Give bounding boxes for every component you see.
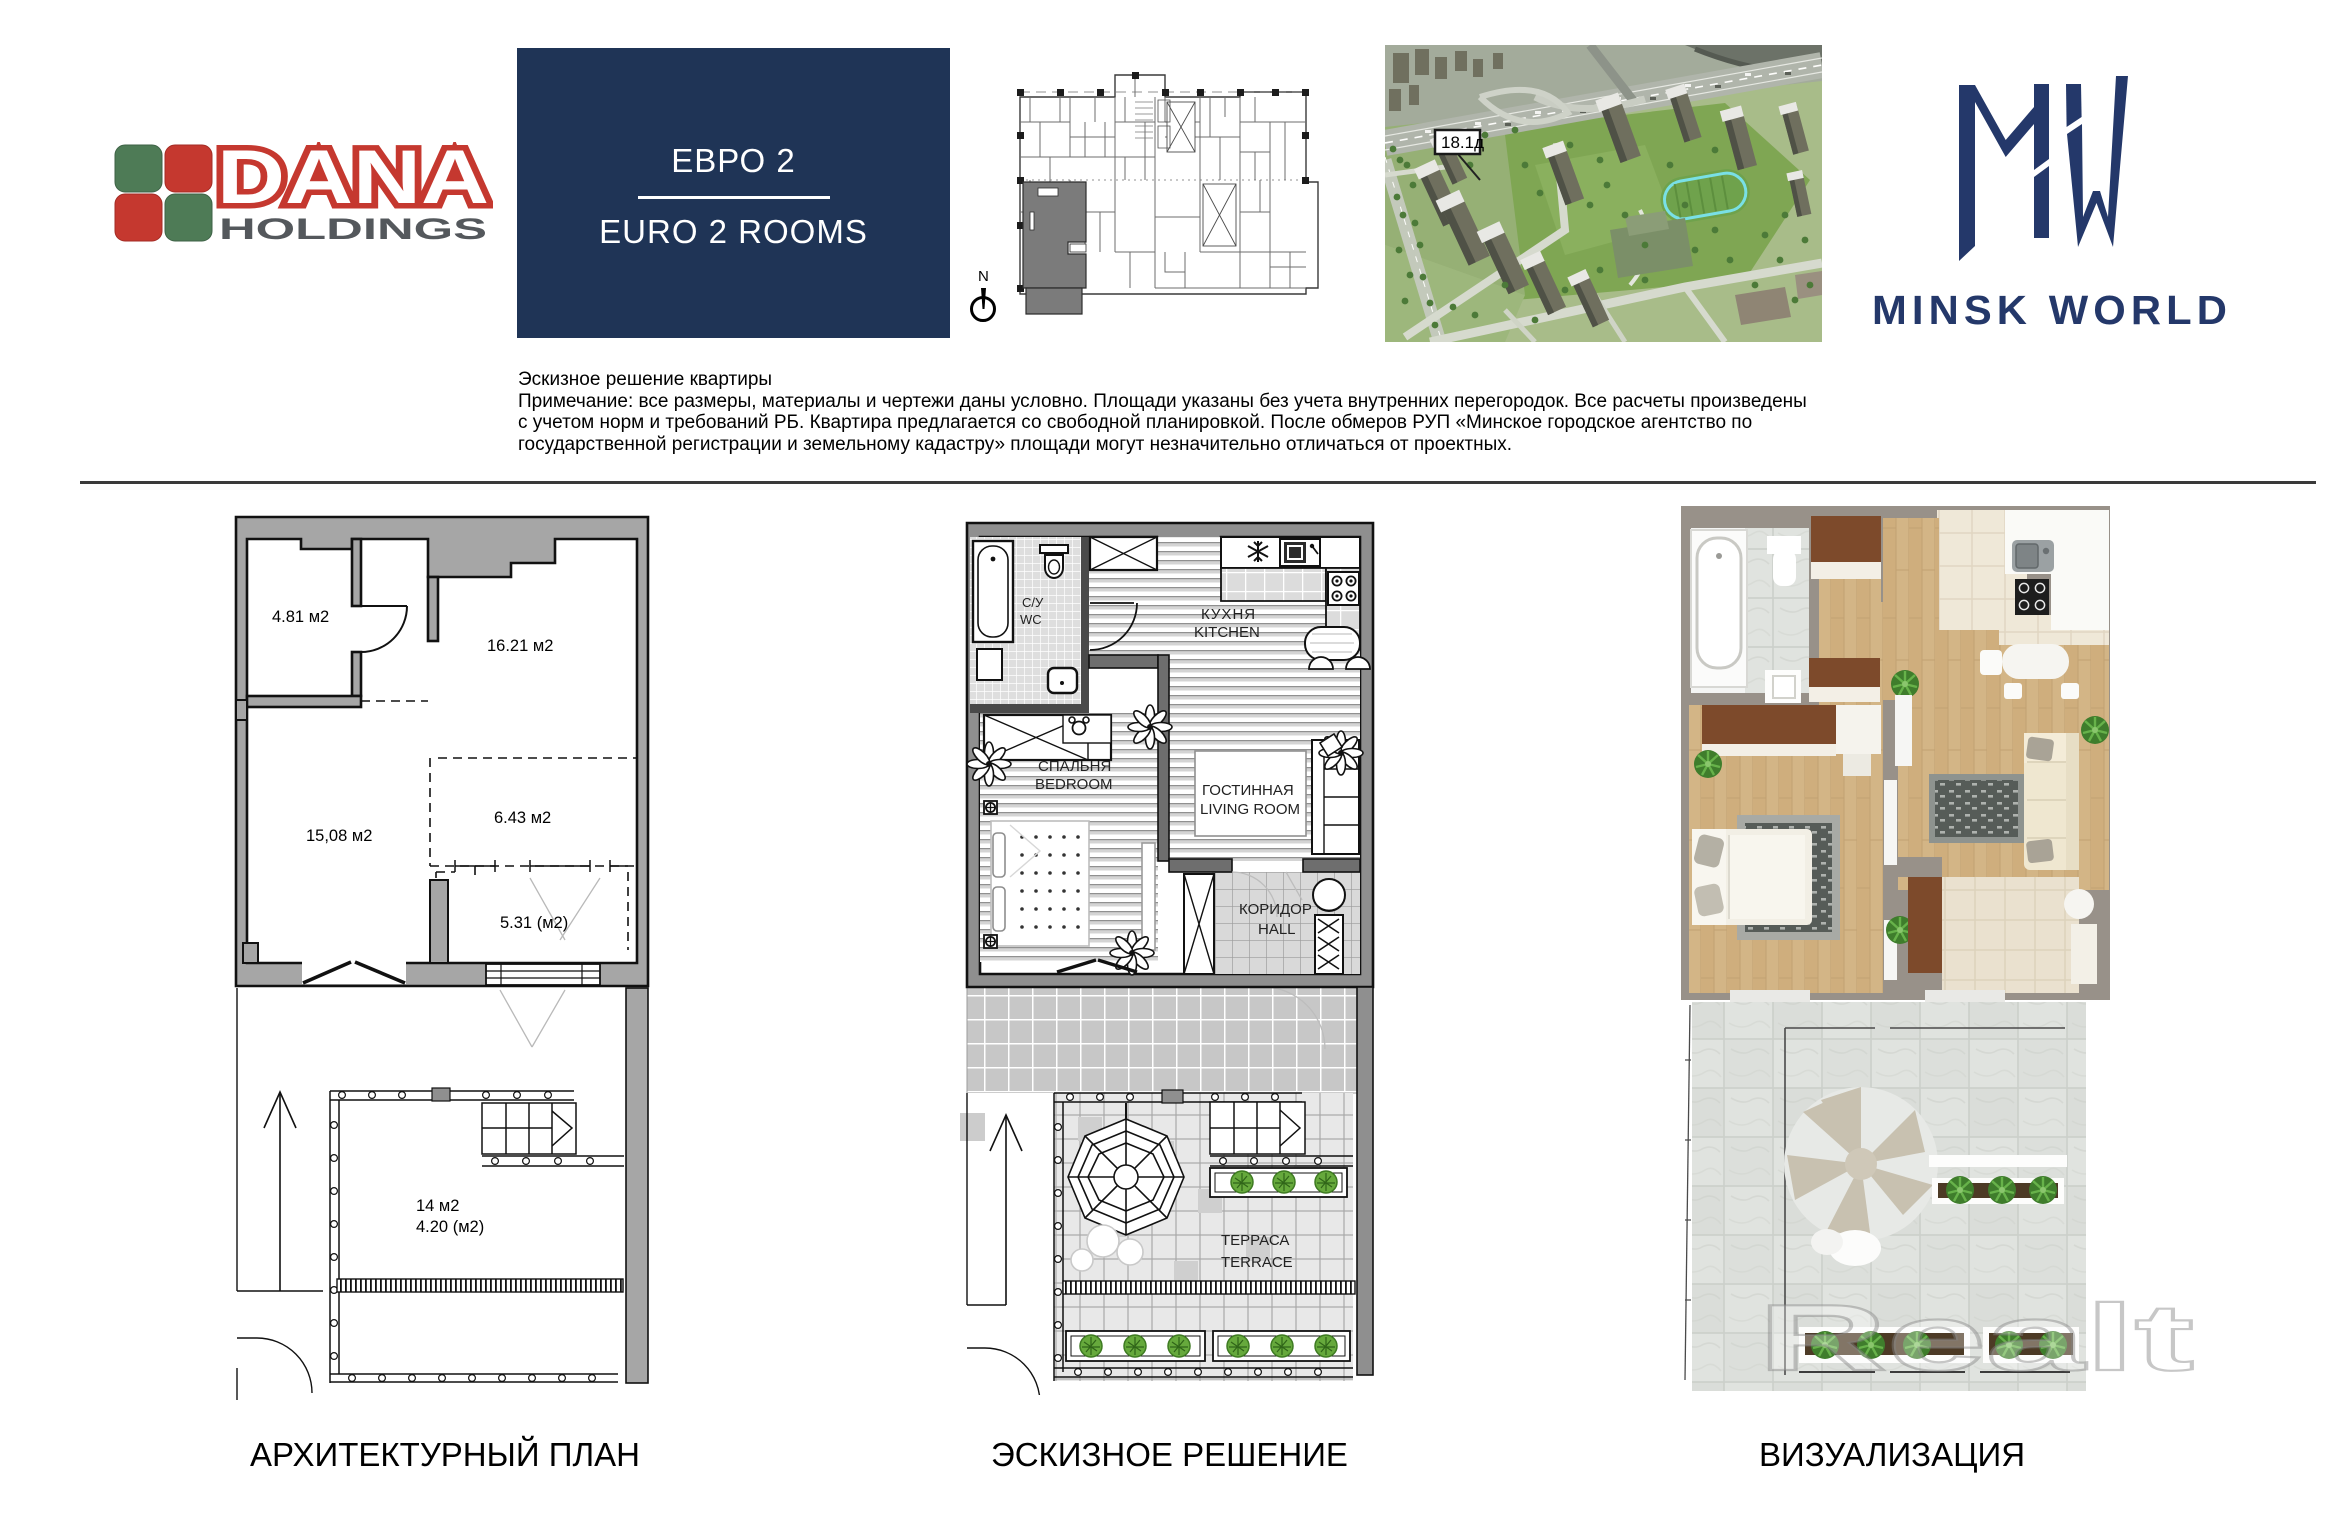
svg-text:КУХНЯ: КУХНЯ [1201,606,1256,623]
svg-text:HOLDINGS: HOLDINGS [219,213,487,242]
svg-text:СПАЛЬНЯ: СПАЛЬНЯ [1038,758,1111,775]
svg-text:6.43 м2: 6.43 м2 [494,809,551,827]
svg-text:ТЕРРАСА: ТЕРРАСА [1221,1232,1289,1249]
svg-text:С/У: С/У [1022,595,1044,610]
svg-text:Realt: Realt [1758,1296,2194,1386]
svg-text:BEDROOM: BEDROOM [1035,776,1113,793]
svg-text:LIVING ROOM: LIVING ROOM [1200,801,1300,818]
svg-text:MINSK WORLD: MINSK WORLD [1872,287,2232,333]
svg-text:5.31 (м2): 5.31 (м2) [500,914,568,932]
svg-text:TERRACE: TERRACE [1221,1254,1293,1271]
svg-text:WC: WC [1020,612,1042,627]
svg-text:4.20 (м2): 4.20 (м2) [416,1218,484,1236]
svg-text:15,08 м2: 15,08 м2 [306,827,372,845]
svg-text:16.21 м2: 16.21 м2 [487,637,553,655]
svg-text:N: N [978,268,989,285]
svg-text:14 м2: 14 м2 [416,1197,459,1215]
svg-text:KITCHEN: KITCHEN [1194,624,1260,641]
svg-text:18.1д: 18.1д [1441,133,1484,152]
svg-text:4.81 м2: 4.81 м2 [272,608,329,626]
svg-text:HALL: HALL [1258,921,1296,938]
svg-text:DANA: DANA [217,142,489,220]
svg-text:ГОСТИННАЯ: ГОСТИННАЯ [1202,782,1294,799]
svg-text:КОРИДОР: КОРИДОР [1239,901,1312,918]
